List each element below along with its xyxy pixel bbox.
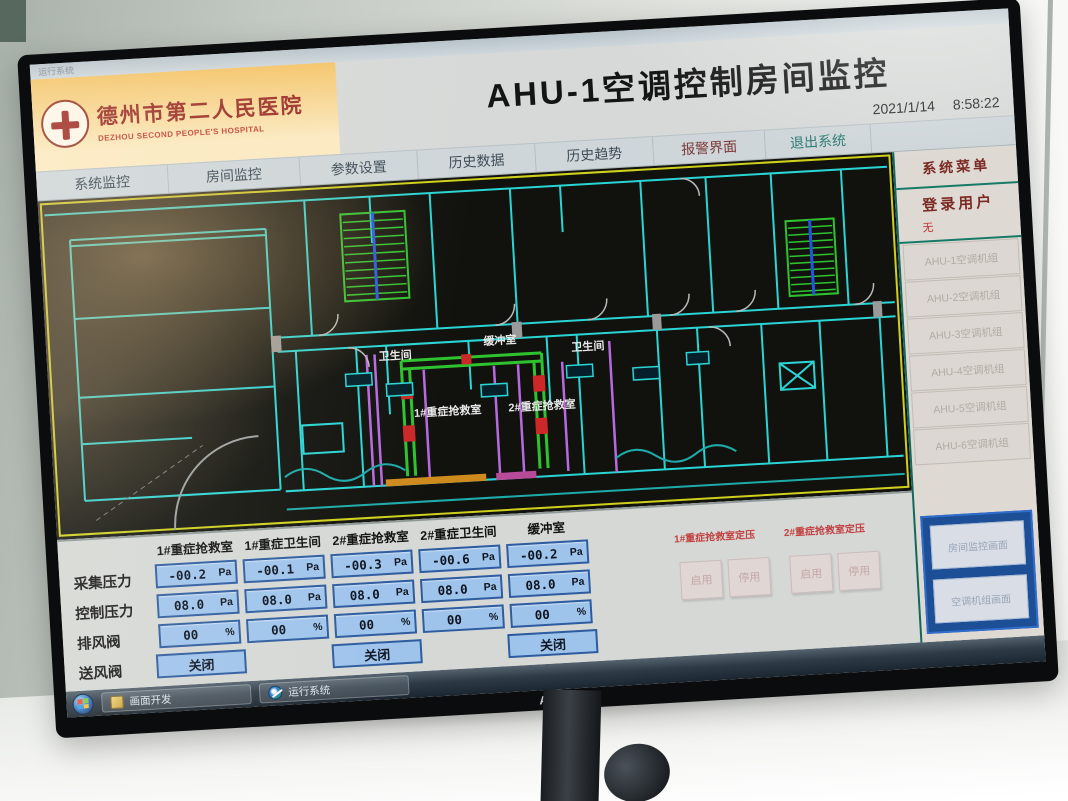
value-text: 08.0: [163, 595, 216, 613]
wall-corner-object: [0, 0, 26, 42]
time-text: 8:58:22: [952, 94, 1000, 113]
datetime: 2021/1/14 8:58:22: [872, 94, 1000, 117]
value-text: 00: [252, 620, 305, 638]
unit-text: Pa: [564, 546, 583, 559]
unit-text: Pa: [215, 596, 234, 609]
stairs: [340, 186, 838, 321]
windows-logo-icon: [77, 698, 88, 710]
floor-plan: 卫生间 缓冲室 卫生间 1#重症抢救室 2#重症抢救室: [38, 152, 912, 540]
taskbar-item-label: 运行系统: [288, 682, 331, 699]
duct-orange-bar: [386, 474, 487, 487]
exhaust-valve-box[interactable]: 00%: [510, 599, 593, 628]
unit-text: Pa: [476, 551, 495, 564]
kingview-eye-icon: [268, 685, 283, 700]
unit-text: Pa: [302, 591, 321, 604]
panel-button-ahu-view[interactable]: 空调机组画面: [933, 574, 1029, 623]
screen: 运行系统 德州市第二人民医院 DEZHOU SECOND PEOPLE'S HO…: [30, 8, 1046, 717]
value-text: -00.2: [161, 566, 214, 584]
page-title: AHU-1空调控制房间监控: [485, 46, 891, 117]
panel-button-room-view[interactable]: 房间监控画面: [930, 520, 1026, 569]
exhaust-valve-box[interactable]: 00%: [246, 615, 329, 644]
unit-text: Pa: [389, 556, 408, 569]
sidebar-item-ahu2[interactable]: AHU-2空调机组: [905, 275, 1023, 318]
pz2-enable-button[interactable]: 启用: [789, 553, 833, 593]
floor-plan-svg: 卫生间 缓冲室 卫生间 1#重症抢救室 2#重症抢救室: [38, 152, 912, 540]
value-text: 00: [428, 610, 481, 628]
exhaust-valve-box[interactable]: 00%: [158, 620, 241, 649]
monitor-stand: [541, 689, 602, 801]
value-text: -00.3: [337, 555, 390, 573]
row-label-control-pressure: 控制压力: [75, 598, 160, 624]
unit-text: %: [216, 626, 235, 639]
hospital-logo-band: 德州市第二人民医院 DEZHOU SECOND PEOPLE'S HOSPITA…: [31, 62, 341, 171]
collected-pressure-box: -00.2Pa: [506, 539, 589, 568]
control-pressure-box[interactable]: 08.0Pa: [420, 574, 503, 603]
collected-pressure-box: -00.1Pa: [243, 555, 326, 584]
row-label-exhaust-valve: 排风阀: [76, 628, 161, 654]
exhaust-valve-box[interactable]: 00%: [422, 604, 505, 633]
value-text: 00: [164, 625, 217, 643]
sidebar-item-ahu4[interactable]: AHU-4空调机组: [909, 349, 1027, 392]
unit-text: %: [304, 621, 323, 634]
row-label-collected-pressure: 采集压力: [73, 568, 158, 594]
value-text: -00.1: [249, 560, 302, 578]
scada-ui: 运行系统 德州市第二人民医院 DEZHOU SECOND PEOPLE'S HO…: [30, 8, 1046, 717]
collected-pressure-box: -00.3Pa: [330, 550, 413, 579]
duct-pink-bar: [496, 471, 537, 480]
sidebar-item-ahu5[interactable]: AHU-5空调机组: [911, 386, 1029, 429]
window-title: 运行系统: [38, 63, 75, 78]
login-block: 登录用户 无: [896, 183, 1021, 244]
value-text: -00.6: [424, 550, 477, 568]
control-pressure-box[interactable]: 08.0Pa: [332, 579, 415, 608]
main-area: 卫生间 缓冲室 卫生间 1#重症抢救室 2#重症抢救室 系统菜单: [38, 145, 1036, 540]
supply-valve-close-button[interactable]: 关闭: [156, 649, 247, 678]
row-label-supply-valve: 送风阀: [78, 658, 163, 684]
date-text: 2021/1/14: [872, 98, 935, 118]
monitor: 运行系统 德州市第二人民医院 DEZHOU SECOND PEOPLE'S HO…: [17, 0, 1059, 738]
value-text: 00: [516, 605, 569, 623]
unit-text: %: [392, 616, 411, 629]
logo-cross-icon: [61, 111, 70, 140]
unit-text: Pa: [566, 576, 585, 589]
unit-text: Pa: [390, 586, 409, 599]
collected-pressure-box: -00.6Pa: [418, 544, 501, 573]
unit-text: Pa: [213, 566, 232, 579]
document-icon: [110, 695, 124, 709]
value-text: 00: [340, 615, 393, 633]
supply-valve-close-button[interactable]: 关闭: [332, 639, 423, 668]
pz1-enable-button[interactable]: 启用: [679, 560, 723, 600]
value-text: -00.2: [512, 545, 565, 563]
taskbar-item-label: 画面开发: [129, 691, 172, 708]
control-pressure-box[interactable]: 08.0Pa: [244, 585, 327, 614]
control-pressure-box[interactable]: 08.0Pa: [156, 590, 239, 619]
pz2-disable-button[interactable]: 停用: [837, 551, 881, 591]
hospital-logo: [40, 98, 91, 149]
sidebar-item-ahu3[interactable]: AHU-3空调机组: [907, 312, 1025, 355]
value-text: 08.0: [514, 575, 567, 593]
login-user: 无: [922, 215, 1011, 236]
collected-pressure-box: -00.2Pa: [155, 560, 238, 589]
label-icu1: 1#重症抢救室: [414, 402, 482, 420]
pressure-zone-label-2: 2#重症抢救室定压: [783, 518, 890, 539]
exhaust-valve-box[interactable]: 00%: [334, 609, 417, 638]
sidebar-spacer: [912, 459, 1037, 513]
plan-walls: [44, 167, 903, 505]
unit-text: %: [480, 611, 499, 624]
label-buffer-room: 缓冲室: [483, 332, 517, 348]
unit-text: Pa: [478, 581, 497, 594]
login-label: 登录用户: [907, 190, 1010, 217]
sidebar-item-ahu1[interactable]: AHU-1空调机组: [903, 238, 1021, 281]
pressure-zone-label-1: 1#重症抢救室定压: [674, 524, 781, 545]
column-header: 缓冲室: [493, 515, 600, 540]
photo-scene: 运行系统 德州市第二人民医院 DEZHOU SECOND PEOPLE'S HO…: [0, 0, 1068, 801]
label-toilet-left: 卫生间: [378, 347, 412, 363]
value-text: 08.0: [426, 580, 479, 598]
sidebar-blue-panel: 房间监控画面 空调机组画面: [920, 510, 1039, 634]
control-pressure-box[interactable]: 08.0Pa: [508, 569, 591, 598]
hospital-names: 德州市第二人民医院 DEZHOU SECOND PEOPLE'S HOSPITA…: [96, 89, 305, 143]
unit-text: %: [568, 606, 587, 619]
value-text: 08.0: [338, 585, 391, 603]
value-text: 08.0: [250, 590, 303, 608]
unit-text: Pa: [301, 561, 320, 574]
pz1-disable-button[interactable]: 停用: [727, 557, 771, 597]
start-button[interactable]: [72, 693, 94, 715]
supply-valve-close-button[interactable]: 关闭: [507, 629, 598, 658]
